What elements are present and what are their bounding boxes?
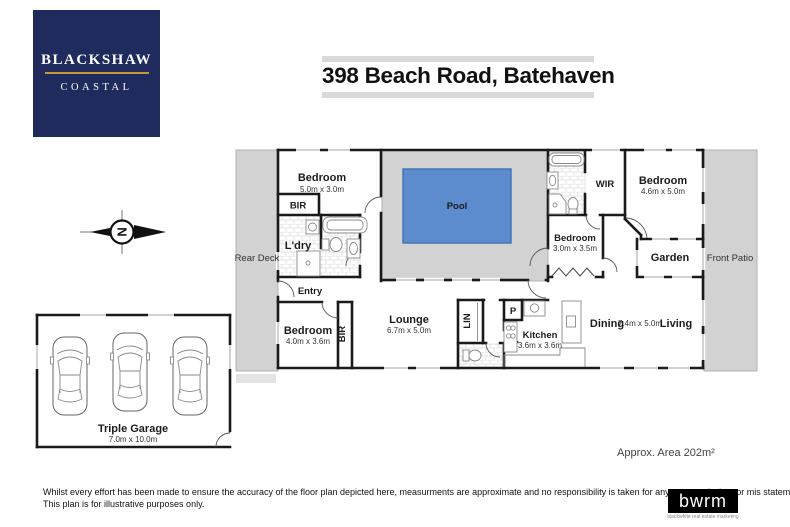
shower-icon <box>297 251 320 276</box>
bedroom4-dims: 4.6m x 5.0m <box>641 187 685 196</box>
garage-label: Triple Garage <box>98 423 168 435</box>
lounge-dims: 6.7m x 5.0m <box>387 326 431 335</box>
garden-label: Garden <box>651 252 690 264</box>
island-bench <box>562 301 581 343</box>
car-icon <box>111 333 150 411</box>
toilet-icon <box>322 239 329 250</box>
kitchen-label: Kitchen <box>523 330 558 341</box>
bedroom2-label: Bedroom <box>284 325 333 337</box>
compass-north-icon: N <box>80 210 166 254</box>
front-patio-label: Front Patio <box>707 253 753 264</box>
garage-dims: 7.0m x 10.0m <box>109 435 158 444</box>
bedroom2-dims: 4.0m x 3.6m <box>286 337 330 346</box>
basin-icon <box>347 239 360 258</box>
rear-deck-label: Rear Deck <box>235 253 280 264</box>
bwrm-tagline: blackwhite real estate marketing <box>666 514 740 520</box>
dining-living-dims: 7.4m x 5.0m <box>618 319 662 328</box>
basin2-icon <box>547 172 558 189</box>
floorplan-page: BLACKSHAW COASTAL 398 Beach Road, Bateha… <box>0 0 790 527</box>
compass-n-label: N <box>115 227 130 236</box>
toilet3-icon <box>463 350 469 361</box>
ldry-label: L'dry <box>285 240 312 252</box>
lin-label: LIN <box>462 313 473 328</box>
bir2-label: BIR <box>337 326 348 343</box>
pool-label: Pool <box>447 201 468 212</box>
bedroom1-dims: 5.0m x 3.0m <box>300 185 344 194</box>
deck-step <box>236 374 276 383</box>
bathtub-icon <box>323 217 367 233</box>
sink-cabinet <box>524 301 545 316</box>
bathtub2-icon <box>549 153 584 166</box>
living-label: Living <box>660 318 692 330</box>
pantry-label: P <box>510 306 517 317</box>
bedroom4-label: Bedroom <box>639 175 688 187</box>
wir-label: WIR <box>596 179 615 190</box>
bedroom3-label: Bedroom <box>554 233 596 244</box>
bwrm-logo: bwrm <box>668 489 738 513</box>
lounge-label: Lounge <box>389 314 429 326</box>
bedroom3-dims: 3.0m x 3.5m <box>553 244 597 253</box>
car-icon <box>171 337 210 415</box>
bedroom1-label: Bedroom <box>298 172 347 184</box>
car-icon <box>51 337 90 415</box>
disclaimer-line2: This plan is for illustrative purposes o… <box>43 499 204 509</box>
bifold-opening <box>552 268 594 276</box>
kitchen-dims: 3.6m x 3.6m <box>518 341 562 350</box>
entry-label: Entry <box>298 286 323 297</box>
area-note: Approx. Area 202m² <box>617 447 715 459</box>
bir1-label: BIR <box>290 201 307 212</box>
washer-icon <box>306 220 319 234</box>
